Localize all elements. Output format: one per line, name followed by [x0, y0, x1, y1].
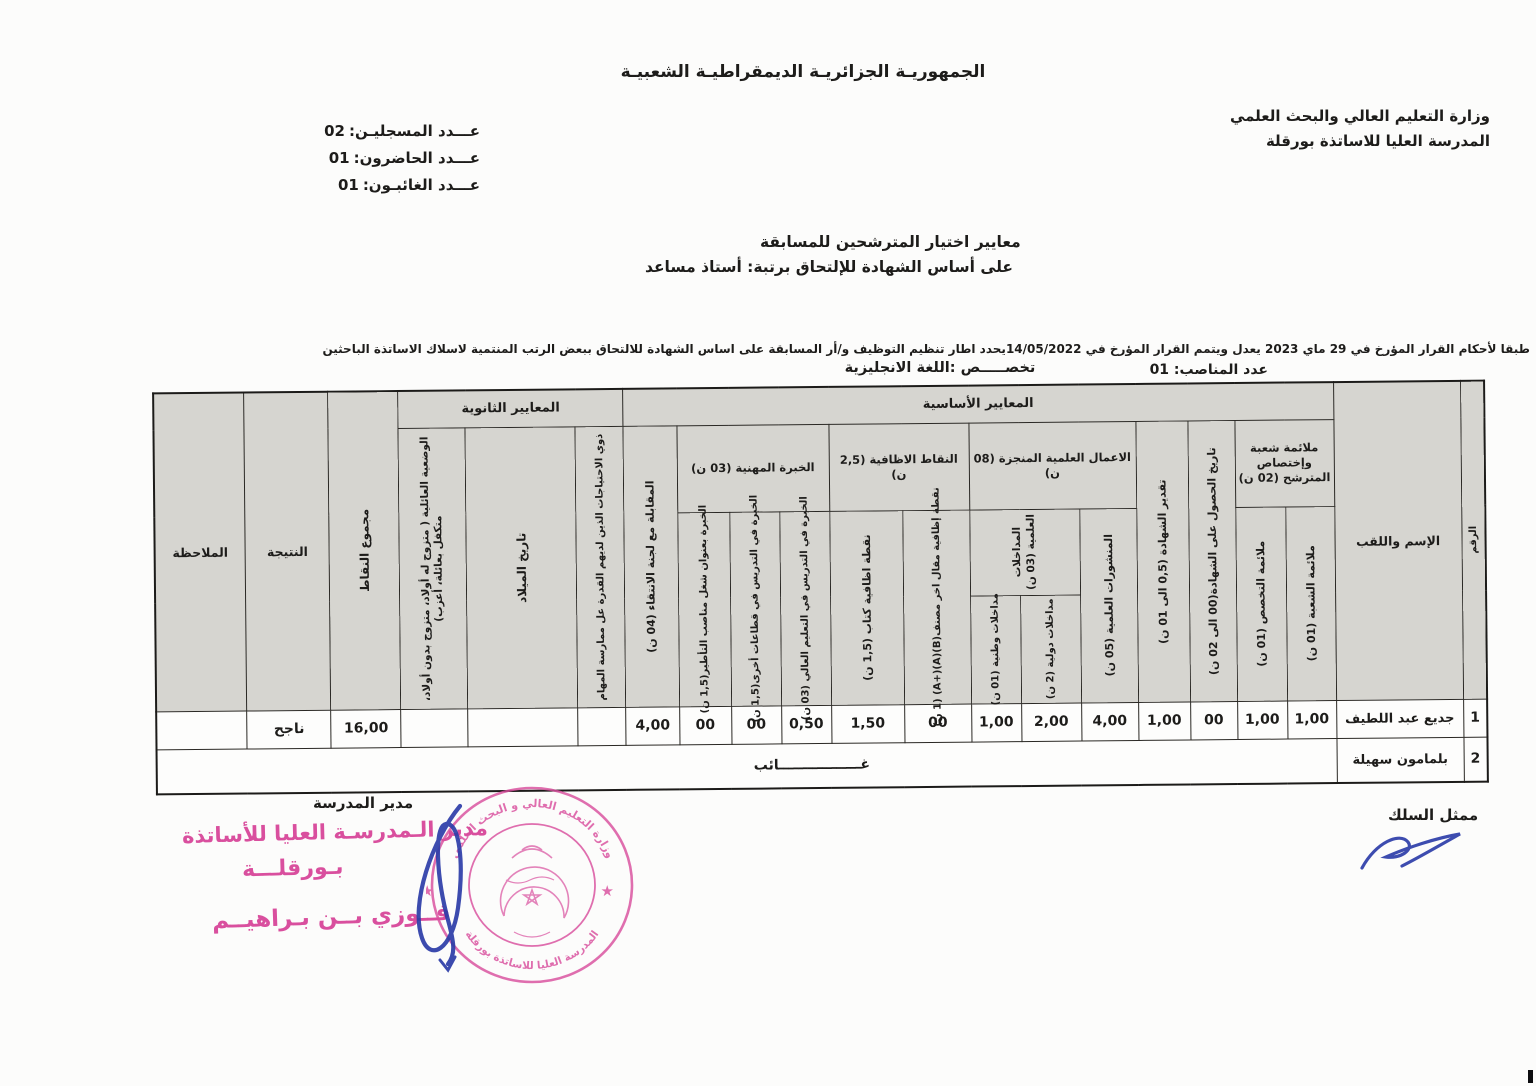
col-header-number: الرقم [1460, 381, 1487, 699]
cell-number: 2 [1463, 737, 1487, 782]
col-header-fit-branch: ملائمة الشعبة (01 ن) [1285, 506, 1336, 700]
col-header-interview-label: المقابلة مع لجنة الانتقاء (04 ن) [644, 480, 659, 652]
cell-birth-date [468, 707, 578, 746]
col-header-total-points-label: مجموع النقاط [357, 509, 372, 592]
col-header-family-status-label: الوضعية العائلية ( متزوج له أولاد، متزوج… [419, 421, 448, 716]
cell-candidate-name: بلمامون سهيلة [1336, 737, 1463, 783]
document-title-line2: على أساس الشهادة للإلتحاق برتبة: أستاذ م… [645, 258, 1013, 276]
stat-present: عـــدد الحاضرون:01 [324, 145, 480, 172]
col-header-degree-grade-label: تقدير الشهادة (0,5 الى 01 ن) [1155, 479, 1170, 644]
criteria-table-wrap: الرقم الإسم واللقب المعايير الأساسية الم… [153, 380, 1489, 796]
cell-talks-international: 2,00 [1021, 703, 1081, 742]
col-header-fit-specialty-label: ملائمة التخصص (01 ن) [1254, 541, 1268, 667]
col-header-name: الإسم واللقب [1333, 381, 1463, 700]
col-header-total-points: مجموع النقاط [328, 391, 401, 710]
cell-degree-grade: 1,00 [1138, 701, 1190, 739]
col-header-talks-national-label: مداخلات وطنية (01 ن) [990, 593, 1002, 705]
col-header-exp-other-sectors-label: الخبرة في التدريس في قطاعات أخرى(1,5 ن) [749, 495, 762, 723]
col-header-birth-date-label: تاريخ الميلاد [514, 532, 529, 602]
posts-label: عدد المناصب: [1174, 362, 1268, 378]
col-header-extra-article-label: نقطة إظافية مقال اخر مصنف(B)(A)(+A) (1 ن… [930, 487, 943, 726]
col-header-degree-grade: تقدير الشهادة (0,5 الى 01 ن) [1135, 420, 1190, 701]
col-header-fit-specialty: ملائمة التخصص (01 ن) [1235, 507, 1287, 701]
stats-block: عـــدد المسجليـن:02 عـــدد الحاضرون:01 ع… [324, 118, 480, 199]
representative-signature [1356, 826, 1471, 881]
col-header-talks-national: مداخلات وطنية (01 ن) [970, 595, 1021, 703]
cell-interview: 4,00 [626, 706, 680, 745]
cell-extra-book: 1,50 [831, 704, 904, 743]
col-header-fit-branch-label: ملائمة الشعبة (01 ن) [1304, 545, 1318, 661]
cell-fit-branch: 1,00 [1287, 700, 1336, 738]
col-header-extra-book: نقطة اظافية كتاب (1,5 ن) [829, 510, 904, 705]
col-header-extra-book-label: نقطة اظافية كتاب (1,5 ن) [859, 534, 873, 681]
director-signature [398, 792, 508, 977]
ministry-block: وزارة التعليم العالي والبحث العلمي المدر… [1230, 104, 1490, 154]
col-header-extra-article: نقطة إظافية مقال اخر مصنف(B)(A)(+A) (1 ن… [902, 510, 971, 705]
cell-degree-date: 00 [1190, 701, 1237, 739]
col-header-degree-date: تاريخ الحصول على الشهادة(00 الى 02 ن) [1187, 420, 1237, 701]
band-candidate-fit: ملائمة شعبة وإختصاص المترشح (02 ن) [1234, 419, 1334, 507]
col-header-special-needs: ذوي الاحتياجات الذين لديهم القدرة عل مما… [575, 426, 626, 707]
cell-publications: 4,00 [1081, 702, 1138, 741]
stat-registered-value: 02 [324, 122, 349, 140]
posts-count: عدد المناصب: 01 [1150, 362, 1268, 378]
col-header-talks-international: مداخلات دولية (2 ن) [1020, 595, 1081, 704]
stat-registered-label: عـــدد المسجليـن: [349, 122, 480, 140]
stat-present-value: 01 [329, 149, 354, 167]
republic-title: الجمهوريـة الجزائريـة الديمقراطيـة الشعب… [35, 62, 1536, 82]
stat-absent-value: 01 [338, 176, 363, 194]
col-header-exp-management-label: الخبرة بعنوان شغل مناصب التأطير(1,5 ن) [698, 505, 711, 714]
cell-candidate-name: جديع عبد اللطيف [1336, 699, 1463, 738]
scanned-document-page: { "header": { "republic_title": "الجمهور… [0, 0, 1536, 1086]
document-title-line1: معايير اختيار المترشحين للمسابقة [760, 233, 1021, 251]
col-header-result: النتيجة [244, 392, 331, 711]
cell-fit-specialty: 1,00 [1237, 701, 1287, 739]
specialty: تخصـــــص :اللغة الانجليزية [800, 360, 1080, 376]
col-header-exp-other-sectors: الخبرة في التدريس في قطاعات أخرى(1,5 ن) [729, 511, 781, 705]
col-header-birth-date: تاريخ الميلاد [465, 426, 578, 708]
col-header-family-status: الوضعية العائلية ( متزوج له أولاد، متزوج… [398, 427, 468, 709]
ministry-line2: المدرسة العليا للاساتذة بورقلة [1230, 129, 1490, 154]
representative-label: ممثل السلك [1388, 806, 1478, 824]
stat-absent: عـــدد الغائبـون:01 [324, 172, 480, 199]
col-header-talks-international-label: مداخلات دولية (2 ن) [1045, 598, 1057, 699]
band-extra-points: النقاط الاظافية (2,5 ن) [828, 423, 969, 511]
scan-artifact-mark [1528, 1070, 1533, 1083]
stamp-text-line2: بـورقلـــة [242, 855, 344, 883]
col-header-publications: المنشورات العلمية (05 ن) [1079, 508, 1138, 703]
criteria-table: الرقم الإسم واللقب المعايير الأساسية الم… [152, 380, 1489, 796]
decree-paragraph: طبقا لأحكام القرار المؤرخ في 29 ماي 2023… [304, 342, 1530, 356]
col-header-exp-higher-ed: الخبرة في التدريس في التعليم العالي (03 … [779, 511, 831, 705]
ministry-line1: وزارة التعليم العالي والبحث العلمي [1230, 104, 1490, 129]
cell-total-points: 16,00 [331, 709, 401, 748]
col-header-special-needs-label: ذوي الاحتياجات الذين لديهم القدرة عل مما… [594, 433, 608, 700]
band-scientific-works: الاعمال العلمية المنجزة (08 ن) [968, 421, 1136, 510]
band-scientific-talks: المداخلات العلمية (03 ن) [969, 509, 1080, 596]
cell-number: 1 [1463, 699, 1487, 737]
cell-talks-national: 1,00 [971, 703, 1021, 741]
col-header-degree-date-label: تاريخ الحصول على الشهادة(00 الى 02 ن) [1205, 447, 1220, 675]
seal-star-right: ★ [601, 882, 614, 900]
col-header-exp-higher-ed-label: الخبرة في التدريس في التعليم العالي (03 … [799, 496, 812, 720]
col-header-note: الملاحظة [153, 393, 247, 712]
col-header-interview: المقابلة مع لجنة الانتقاء (04 ن) [623, 425, 679, 706]
col-header-publications-label: المنشورات العلمية (05 ن) [1102, 534, 1116, 677]
cell-special-needs [578, 707, 626, 745]
posts-value: 01 [1150, 362, 1169, 378]
stat-registered: عـــدد المسجليـن:02 [324, 118, 480, 145]
col-header-exp-management: الخبرة بعنوان شغل مناصب التأطير(1,5 ن) [677, 512, 731, 706]
col-header-number-label: الرقم [1468, 526, 1479, 554]
cell-result: ناجح [247, 710, 331, 749]
stat-absent-label: عـــدد الغائبـون: [363, 176, 480, 194]
national-emblem [501, 846, 569, 937]
band-scientific-talks-label: المداخلات العلمية (03 ن) [1011, 512, 1039, 592]
cell-note [156, 711, 247, 750]
stat-present-label: عـــدد الحاضرون: [354, 149, 480, 167]
